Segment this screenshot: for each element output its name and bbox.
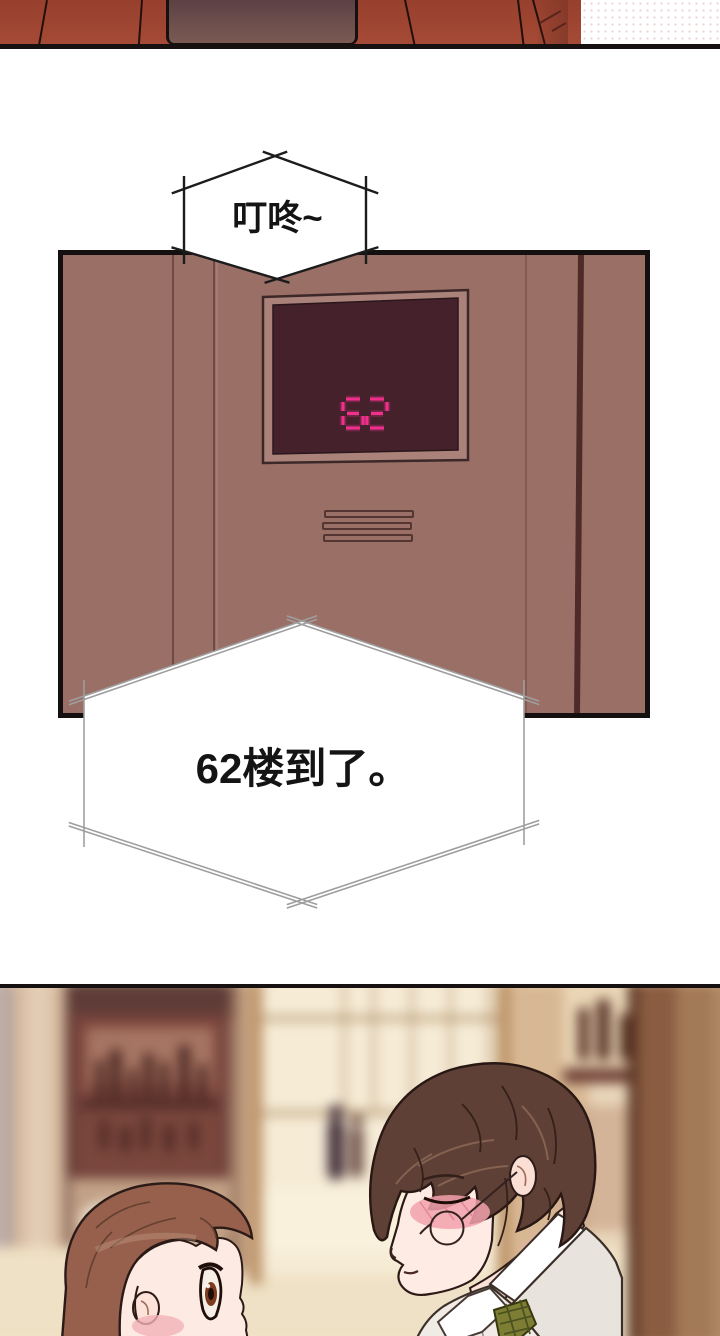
ear: [510, 1156, 536, 1196]
foreground-characters: [0, 988, 720, 1336]
wall-dark-stripe: [574, 255, 584, 713]
character-right: [370, 1063, 622, 1336]
jacket-fold-line: [517, 0, 525, 46]
jacket-fold-line: [38, 0, 48, 46]
sfx-text: 叮咚~: [160, 197, 395, 241]
speaker-grille-slat: [323, 534, 413, 542]
background-corner-stipple: [581, 0, 720, 44]
jacket-fold-line: [138, 0, 143, 46]
speaker-grille-slat: [324, 510, 414, 518]
top-panel-figure: [0, 0, 720, 49]
character-left: [62, 1183, 252, 1336]
panel-bottom-border: [0, 44, 720, 49]
blush: [132, 1315, 184, 1336]
jacket-fold-line: [404, 0, 416, 45]
lobby-scene-panel: [0, 984, 720, 1336]
jacket-back-panel: [166, 0, 358, 45]
dialog-text: 62楼到了。: [100, 743, 506, 795]
speaker-grille-slat: [322, 522, 412, 530]
display-screen: [273, 298, 458, 454]
floor-display: [258, 285, 473, 467]
comic-page: 叮咚~ 62楼到了。: [0, 0, 720, 1336]
